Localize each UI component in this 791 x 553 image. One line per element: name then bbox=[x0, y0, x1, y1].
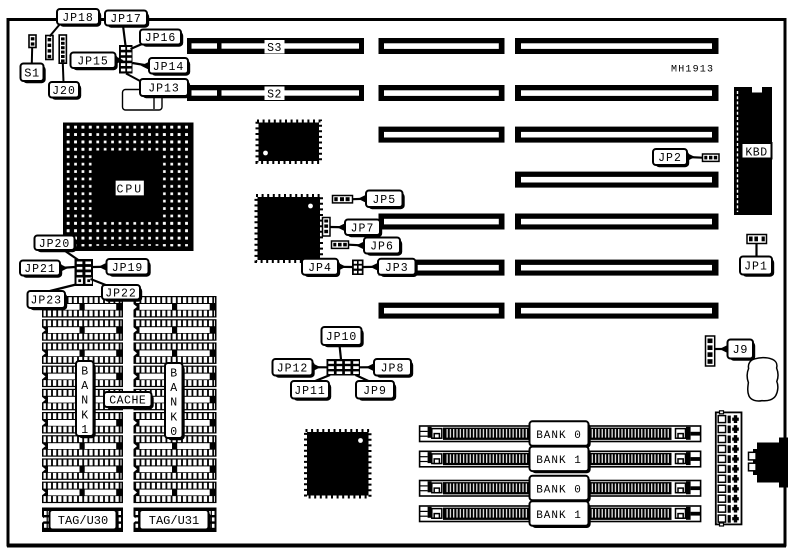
svg-text:0: 0 bbox=[170, 426, 177, 439]
svg-text:B: B bbox=[81, 366, 88, 379]
svg-text:JP13: JP13 bbox=[148, 83, 180, 96]
svg-text:JP9: JP9 bbox=[363, 385, 387, 398]
svg-text:1: 1 bbox=[81, 424, 88, 437]
svg-text:TAG/U31: TAG/U31 bbox=[149, 514, 199, 528]
svg-text:JP12: JP12 bbox=[277, 362, 309, 375]
svg-text:JP7: JP7 bbox=[351, 222, 375, 235]
svg-text:S3: S3 bbox=[267, 42, 282, 55]
svg-text:S1: S1 bbox=[24, 66, 39, 80]
svg-text:N: N bbox=[170, 397, 177, 410]
svg-text:JP1: JP1 bbox=[744, 261, 768, 274]
svg-text:JP18: JP18 bbox=[62, 12, 94, 25]
svg-text:JP23: JP23 bbox=[30, 295, 62, 308]
svg-text:B: B bbox=[170, 368, 177, 381]
svg-text:BANK 1: BANK 1 bbox=[536, 455, 582, 467]
svg-text:JP3: JP3 bbox=[385, 262, 409, 275]
svg-text:JP15: JP15 bbox=[77, 55, 109, 68]
svg-text:JP10: JP10 bbox=[326, 331, 358, 344]
svg-text:BANK 0: BANK 0 bbox=[536, 484, 582, 496]
svg-text:JP14: JP14 bbox=[153, 61, 185, 74]
svg-text:JP2: JP2 bbox=[658, 152, 682, 165]
svg-text:A: A bbox=[170, 382, 177, 395]
svg-text:KBD: KBD bbox=[745, 146, 767, 159]
svg-text:MH1913: MH1913 bbox=[671, 65, 714, 76]
svg-text:JP20: JP20 bbox=[39, 238, 71, 251]
svg-text:JP4: JP4 bbox=[308, 262, 332, 275]
svg-text:K: K bbox=[81, 409, 88, 422]
svg-text:TAG/U30: TAG/U30 bbox=[58, 514, 108, 528]
svg-text:JP17: JP17 bbox=[110, 13, 142, 26]
svg-text:JP21: JP21 bbox=[24, 263, 56, 276]
svg-text:CPU: CPU bbox=[116, 184, 143, 197]
svg-text:BANK 0: BANK 0 bbox=[536, 430, 582, 442]
svg-text:J20: J20 bbox=[52, 85, 76, 98]
svg-text:JP22: JP22 bbox=[105, 287, 137, 300]
svg-text:JP16: JP16 bbox=[145, 32, 177, 45]
svg-text:A: A bbox=[81, 380, 88, 393]
svg-text:JP19: JP19 bbox=[112, 262, 144, 275]
svg-text:N: N bbox=[81, 395, 88, 408]
svg-text:J9: J9 bbox=[733, 343, 748, 357]
svg-text:CACHE: CACHE bbox=[109, 395, 146, 408]
svg-text:K: K bbox=[170, 411, 177, 424]
svg-text:BANK 1: BANK 1 bbox=[536, 510, 582, 522]
svg-text:JP5: JP5 bbox=[372, 194, 396, 207]
svg-text:JP11: JP11 bbox=[294, 385, 326, 398]
svg-text:JP8: JP8 bbox=[381, 362, 405, 375]
svg-text:JP6: JP6 bbox=[370, 241, 394, 254]
svg-text:S2: S2 bbox=[267, 89, 282, 102]
